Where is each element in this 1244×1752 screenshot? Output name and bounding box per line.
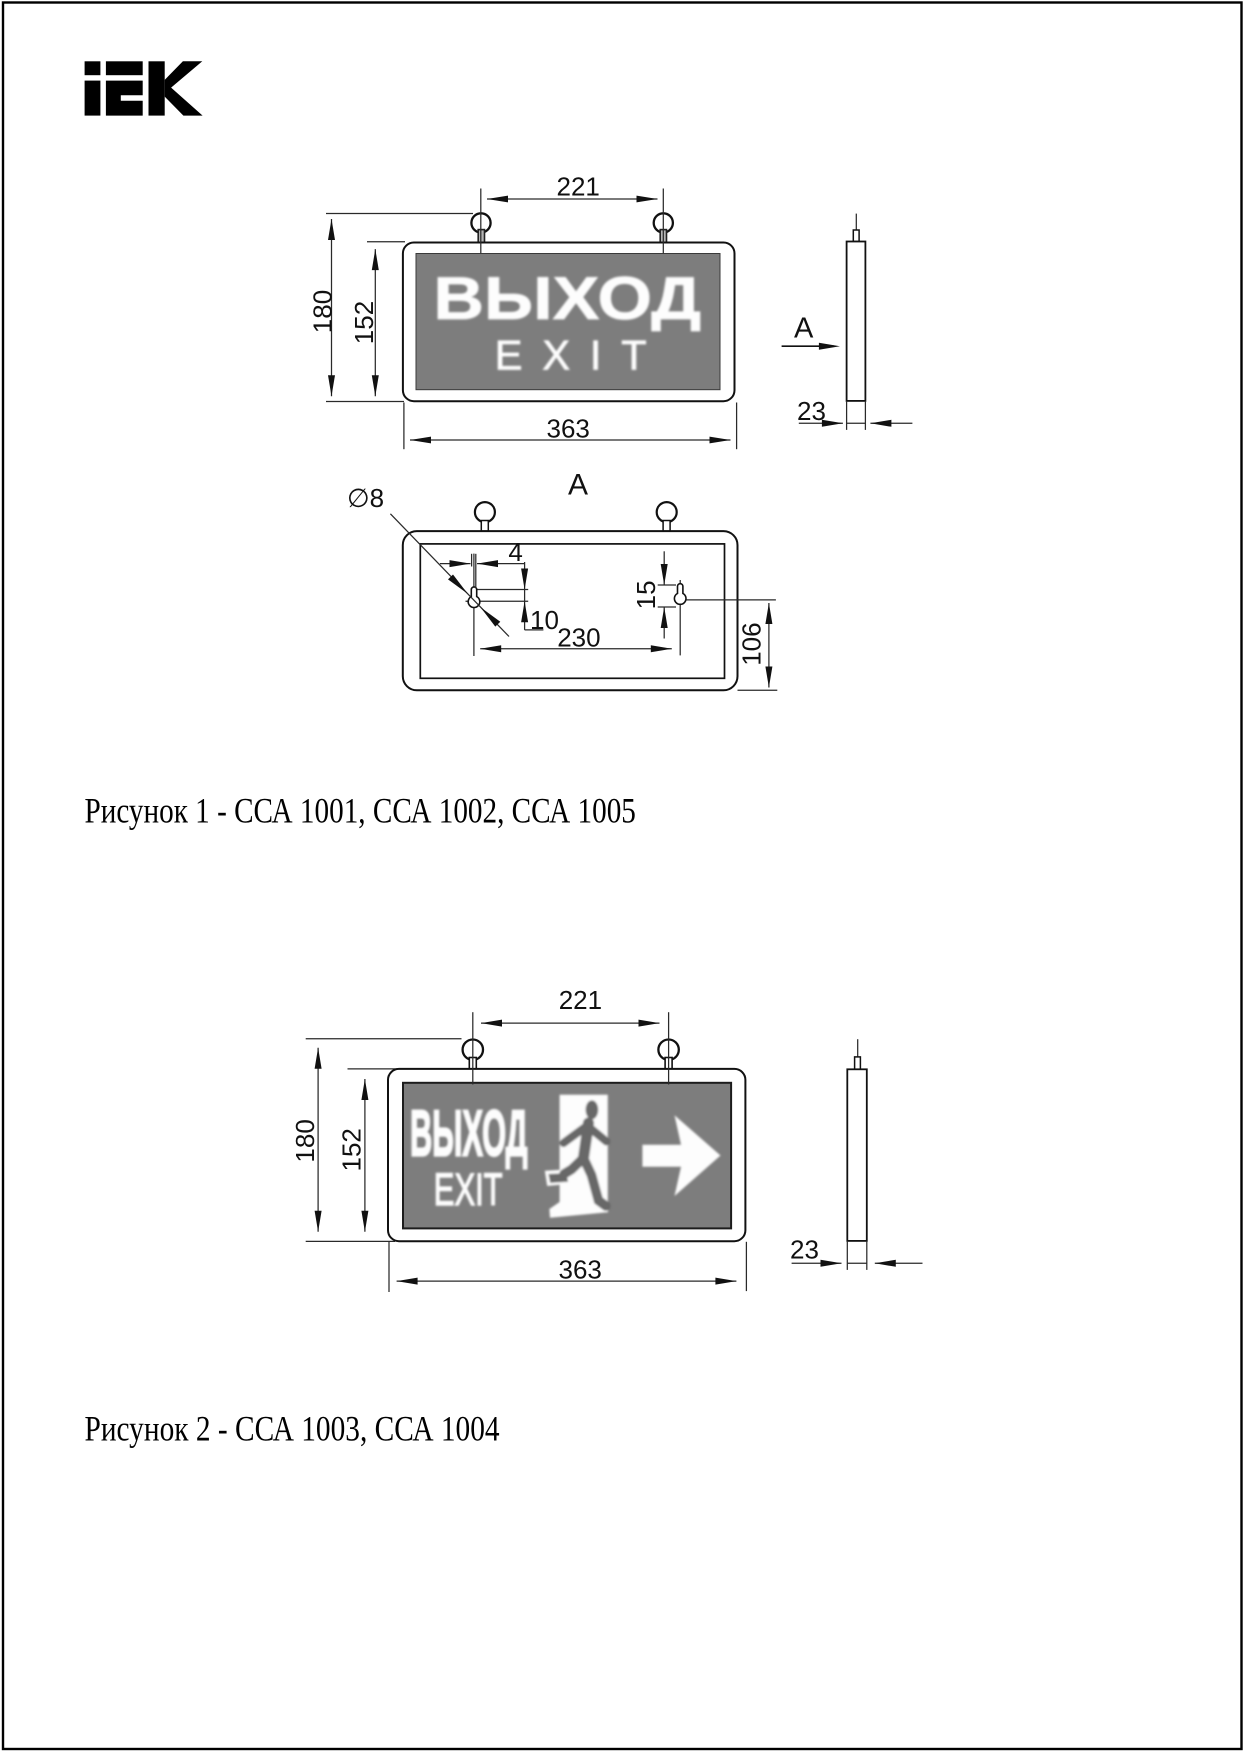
svg-text:152: 152 (337, 1128, 367, 1171)
svg-text:Рисунок 1 - ССА 1001, ССА 1002: Рисунок 1 - ССА 1001, ССА 1002, ССА 1005 (85, 790, 636, 830)
svg-text:23: 23 (790, 1234, 819, 1264)
svg-text:221: 221 (557, 172, 600, 202)
svg-text:10: 10 (530, 605, 559, 635)
svg-text:Рисунок 2 - ССА 1003, ССА 1004: Рисунок 2 - ССА 1003, ССА 1004 (85, 1409, 500, 1449)
svg-text:152: 152 (349, 301, 379, 344)
svg-text:221: 221 (559, 985, 602, 1015)
svg-text:EXIT: EXIT (434, 1164, 503, 1215)
svg-text:ВЫХОД: ВЫХОД (433, 265, 701, 332)
svg-text:180: 180 (290, 1119, 320, 1162)
svg-text:4: 4 (508, 537, 522, 567)
svg-text:A: A (794, 313, 814, 345)
svg-text:363: 363 (559, 1255, 602, 1285)
svg-text:363: 363 (547, 414, 590, 444)
svg-text:230: 230 (557, 623, 600, 653)
svg-text:106: 106 (736, 622, 766, 665)
svg-text:180: 180 (308, 290, 338, 333)
svg-text:∅8: ∅8 (347, 483, 384, 513)
svg-text:A: A (568, 469, 588, 502)
svg-text:23: 23 (797, 396, 826, 426)
svg-text:ВЫХОД: ВЫХОД (410, 1097, 528, 1170)
svg-text:15: 15 (631, 580, 661, 609)
